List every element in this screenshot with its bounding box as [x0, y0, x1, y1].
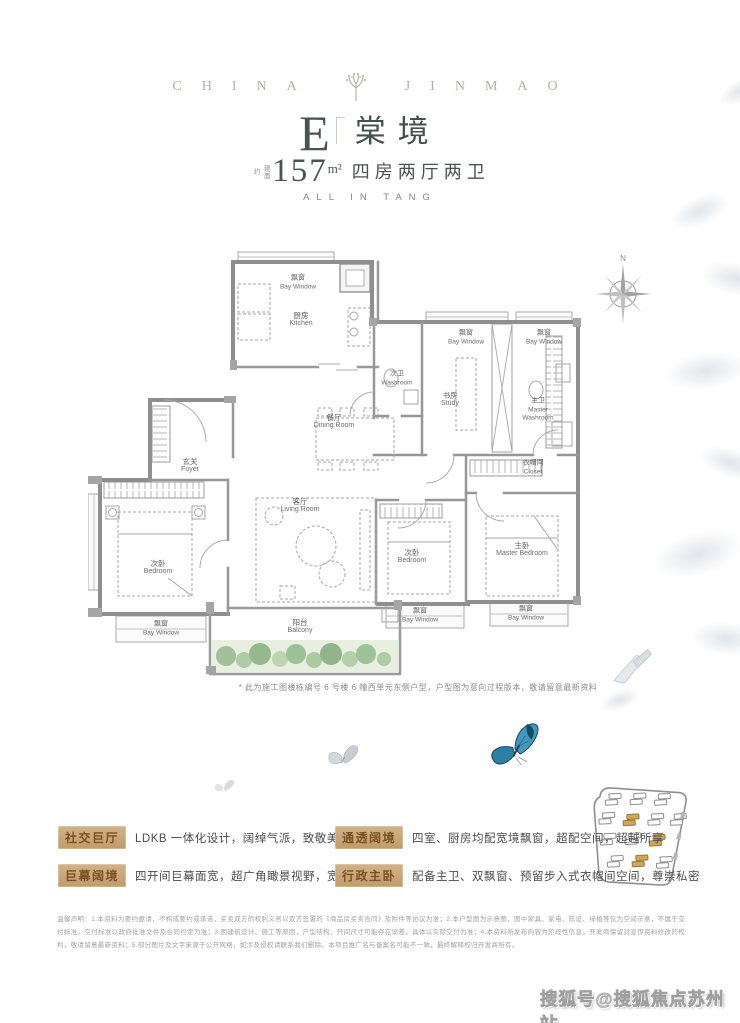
- feature-desc: 配备主卫、双飘窗、预留步入式衣帽间空间，尊崇私密: [412, 868, 700, 884]
- feature-desc: 四室、厨房均配宽境飘窗，超配空间，超越所享: [412, 830, 664, 846]
- feather-decoration: [695, 439, 740, 488]
- unit-area: 建面约157m²四房两厅两卫: [0, 153, 740, 190]
- room-label-bay-window-middle: 飘窗Bay Window: [402, 608, 438, 625]
- room-label-bedroom-left: 次卧Bedroom: [144, 559, 172, 577]
- unit-name: 棠境: [355, 114, 441, 149]
- feature-tag: 行政主卧: [335, 864, 403, 887]
- feather-decoration: [688, 618, 740, 659]
- butterfly-blue-icon: [484, 718, 546, 780]
- room-label-kitchen: 厨房Kitchen: [289, 311, 312, 329]
- area-unit: m²: [328, 161, 342, 176]
- feature-social-hall: 社交巨厅 LDKB 一体化设计，阔绰气派，致敬美满人生: [58, 826, 375, 849]
- room-label-closet: 衣帽间Closet: [523, 460, 544, 477]
- brand-header: CHINA JINMAO: [0, 72, 740, 102]
- feature-transparent-space: 通透阔境 四室、厨房均配宽境飘窗，超配空间，超越所享: [335, 826, 664, 849]
- compass-icon: N: [594, 252, 652, 324]
- butterfly-small-icon: [212, 776, 236, 796]
- room-label-foyer: 玄关Foyer: [181, 457, 199, 475]
- room-label-balcony: 阳台Balcony: [288, 618, 313, 636]
- feather-decoration: [648, 520, 740, 588]
- ribbon-icon: [606, 645, 659, 689]
- tagline: ALL IN TANG: [0, 192, 740, 203]
- room-label-bay-window-right: 飘窗Bay Window: [508, 606, 544, 623]
- feather-decoration: [662, 346, 740, 395]
- room-label-dining-room: 餐厅Dining Room: [314, 413, 354, 431]
- poster-page: CHINA JINMAO E棠境 建面约157m²四房两厅两卫 ALL IN T…: [0, 0, 740, 1023]
- feature-tag: 社交巨厅: [58, 826, 126, 849]
- feature-master-suite: 行政主卧 配备主卫、双飘窗、预留步入式衣帽间空间，尊崇私密: [335, 864, 700, 887]
- floor-plan: 飘窗Bay Window 厨房Kitchen 次卫Washroom 飘窗Bay …: [88, 250, 608, 680]
- feature-tag: 巨幕阔境: [58, 864, 126, 887]
- area-value: 157: [272, 153, 328, 189]
- room-label-bay-window-left: 飘窗Bay Window: [143, 621, 179, 638]
- room-label-bay-window-kitchen: 飘窗Bay Window: [280, 275, 316, 292]
- feature-tag: 通透阔境: [335, 826, 403, 849]
- compass-north-label: N: [620, 254, 626, 263]
- room-label-study: 书房Study: [441, 391, 459, 409]
- room-label-washroom: 次卫Washroom: [381, 371, 412, 388]
- room-label-bedroom-middle: 次卧Bedroom: [398, 548, 426, 566]
- brand-name-left: CHINA: [162, 79, 316, 95]
- brand-name-right: JINMAO: [395, 79, 578, 95]
- room-label-living-room: 客厅Living Room: [281, 497, 320, 515]
- brand-tree-icon: [343, 72, 369, 102]
- area-spec: 四房两厅两卫: [352, 162, 490, 182]
- room-label-bay-window-master-washroom: 飘窗Bay Window: [526, 330, 562, 347]
- legal-disclaimer: 温馨声明：1.本资料为要约邀请，不构成要约或承诺，买卖双方的权利义务以双方签署的…: [57, 913, 685, 952]
- watermark: 搜狐号@搜狐焦点苏州站: [540, 986, 740, 1023]
- type-letter-marks: [336, 117, 345, 144]
- feather-decoration: [697, 255, 740, 303]
- room-label-master-bedroom: 主卧Master Bedroom: [496, 541, 548, 559]
- room-label-bay-window-study: 飘窗Bay Window: [448, 330, 484, 347]
- area-prefix: 建面约: [250, 161, 270, 183]
- room-label-master-washroom: 主卫Master Washroom: [514, 398, 562, 423]
- butterfly-gray-icon: [325, 740, 361, 772]
